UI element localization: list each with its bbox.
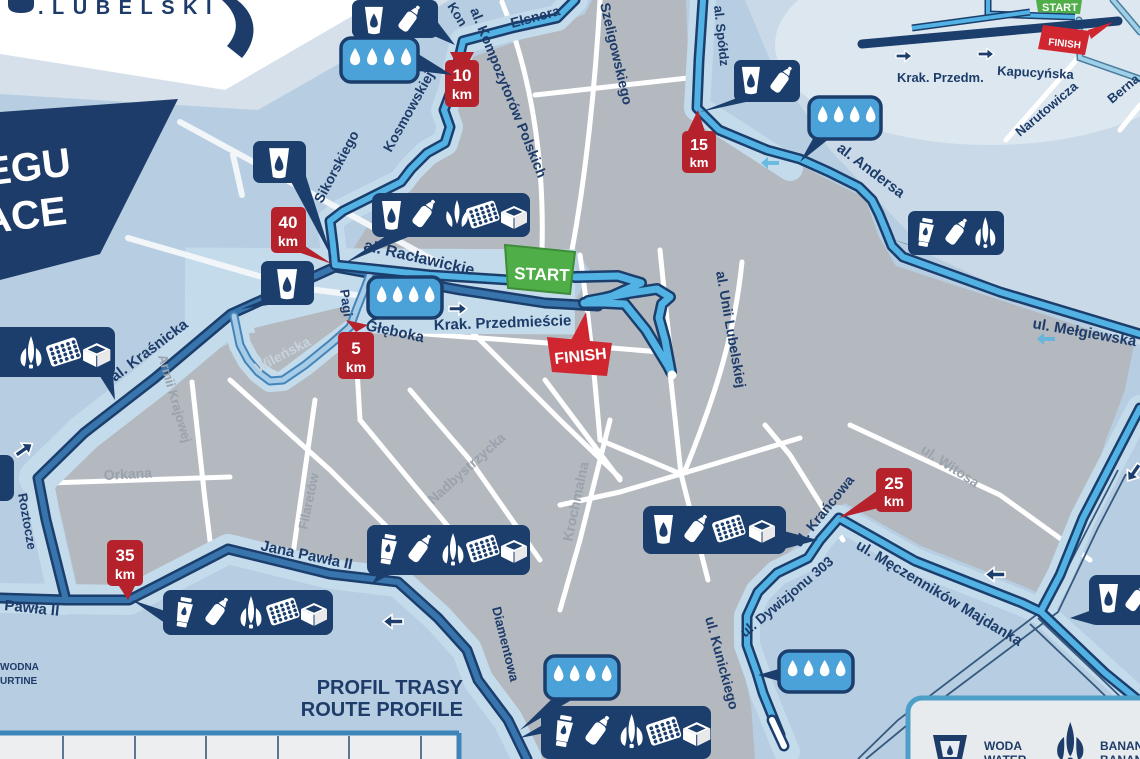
svg-text:PROFIL TRASY: PROFIL TRASY [317,677,464,699]
svg-text:km: km [346,359,366,375]
svg-text:km: km [690,155,709,170]
svg-text:km: km [884,493,904,509]
svg-text:BANANY: BANANY [1100,739,1140,753]
svg-text:WODNA: WODNA [0,662,39,673]
svg-text:25: 25 [885,474,904,493]
svg-text:URTINE: URTINE [0,676,38,687]
svg-text:5: 5 [351,339,360,358]
svg-text:km: km [115,566,135,582]
svg-text:km: km [278,233,298,249]
svg-text:Orkana: Orkana [103,464,152,483]
svg-text:15: 15 [690,137,708,154]
svg-text:WODA: WODA [984,739,1022,753]
svg-text:km: km [452,86,472,102]
svg-text:START: START [514,264,571,285]
svg-text:Krak. Przedm.: Krak. Przedm. [897,70,984,85]
svg-text:ROUTE PROFILE: ROUTE PROFILE [301,699,463,721]
svg-text:WATER: WATER [984,753,1027,759]
svg-text:BANANAS: BANANAS [1100,753,1140,759]
svg-text:35: 35 [116,546,135,565]
svg-text:START: START [1042,2,1078,14]
svg-text:.LUBELSKI: .LUBELSKI [38,0,220,19]
svg-text:40: 40 [279,213,298,232]
svg-text:10: 10 [453,66,472,85]
